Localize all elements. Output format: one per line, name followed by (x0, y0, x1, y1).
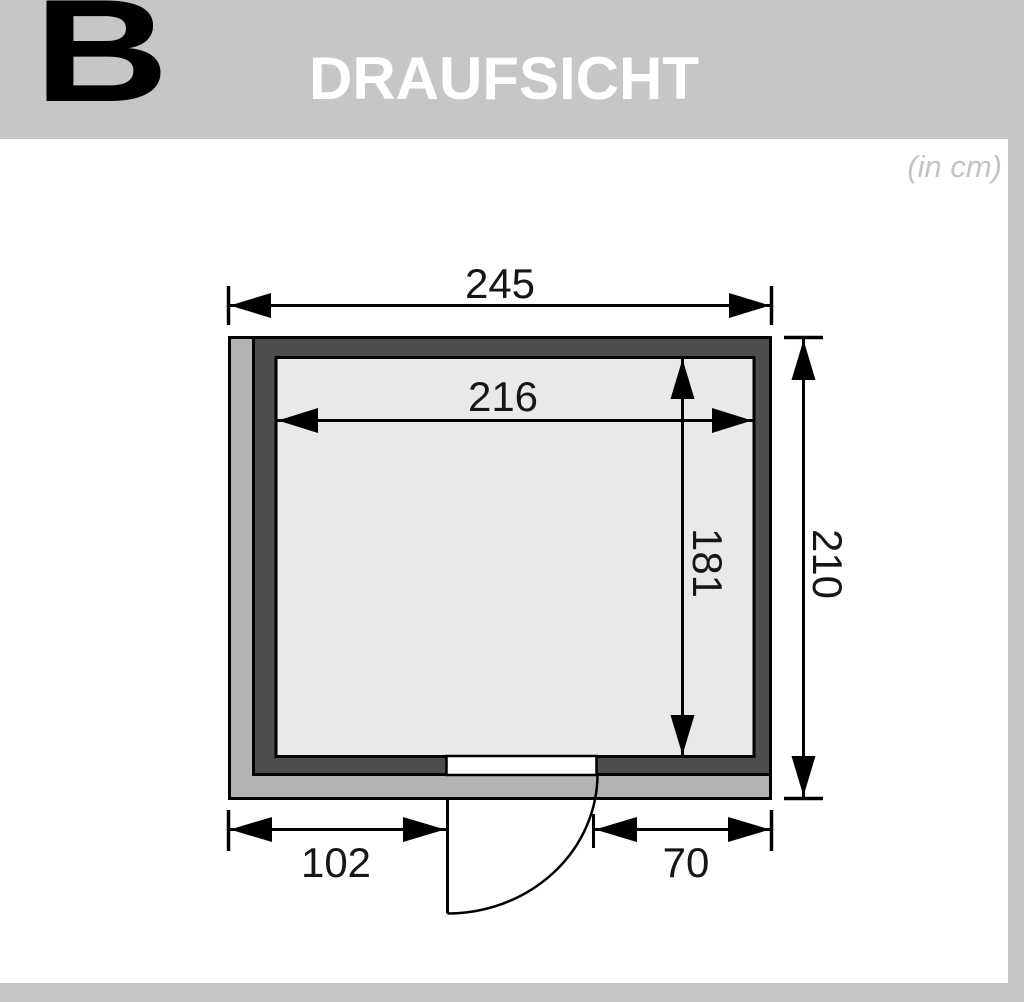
floor-plan-drawing (0, 0, 1024, 1002)
arrowhead-right (729, 293, 770, 318)
label-left-of-door: 102 (301, 842, 371, 884)
arrowhead-right (728, 817, 770, 842)
arrowhead-left (595, 817, 637, 842)
arrowhead-left (230, 293, 271, 318)
arrowhead-up (792, 340, 816, 380)
label-right-of-door: 70 (663, 842, 710, 884)
label-outer-width: 245 (465, 263, 535, 305)
label-inner-depth: 181 (686, 528, 728, 598)
label-inner-width: 216 (468, 376, 538, 418)
arrowhead-left (230, 817, 272, 842)
arrowhead-right (403, 817, 445, 842)
label-outer-depth: 210 (806, 529, 848, 599)
door-sill (447, 756, 597, 775)
arrowhead-down (792, 756, 816, 796)
